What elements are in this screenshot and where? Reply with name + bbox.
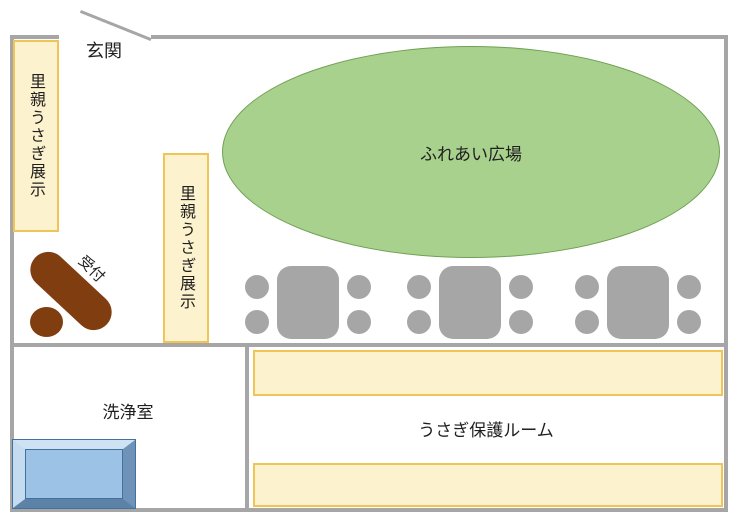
chair [509, 275, 533, 299]
entrance-label: 玄関 [86, 37, 122, 63]
wall-right [724, 35, 728, 512]
chair [677, 275, 701, 299]
foster-rabbit-display-center-label: 里親うさぎ展示 [174, 185, 198, 311]
chair [347, 275, 371, 299]
washing-sink [13, 440, 135, 508]
chair [347, 310, 371, 334]
chair [575, 275, 599, 299]
petting-plaza-ellipse: ふれあい広場 [222, 46, 720, 258]
table-set-2 [407, 266, 533, 339]
foster-rabbit-display-left: 里親うさぎ展示 [13, 40, 59, 232]
floor-plan: 玄関 里親うさぎ展示 里親うさぎ展示 ふれあい広場 受付 洗浄室 [0, 0, 736, 524]
chair [407, 275, 431, 299]
cage-shelf-top [253, 350, 723, 396]
reception-stool [30, 307, 63, 337]
washing-room-label: 洗浄室 [48, 398, 208, 423]
wall-middle [10, 343, 728, 347]
table-set-1 [245, 266, 371, 339]
chair [245, 310, 269, 334]
table [607, 266, 669, 339]
foster-rabbit-display-center: 里親うさぎ展示 [163, 153, 209, 343]
petting-plaza-label: ふれあい広場 [420, 140, 522, 165]
wall-top-left-cap [10, 35, 59, 39]
chair [575, 310, 599, 334]
wall-top [151, 35, 728, 39]
chair [407, 310, 431, 334]
table [439, 266, 501, 339]
chair [677, 310, 701, 334]
rabbit-care-room-label: うさぎ保護ルーム [249, 416, 723, 441]
chair [245, 275, 269, 299]
foster-rabbit-display-left-label: 里親うさぎ展示 [24, 73, 48, 199]
cage-shelf-bottom [253, 463, 723, 507]
chair [509, 310, 533, 334]
table [277, 266, 339, 339]
table-set-3 [575, 266, 701, 339]
wall-bottom [10, 508, 728, 512]
